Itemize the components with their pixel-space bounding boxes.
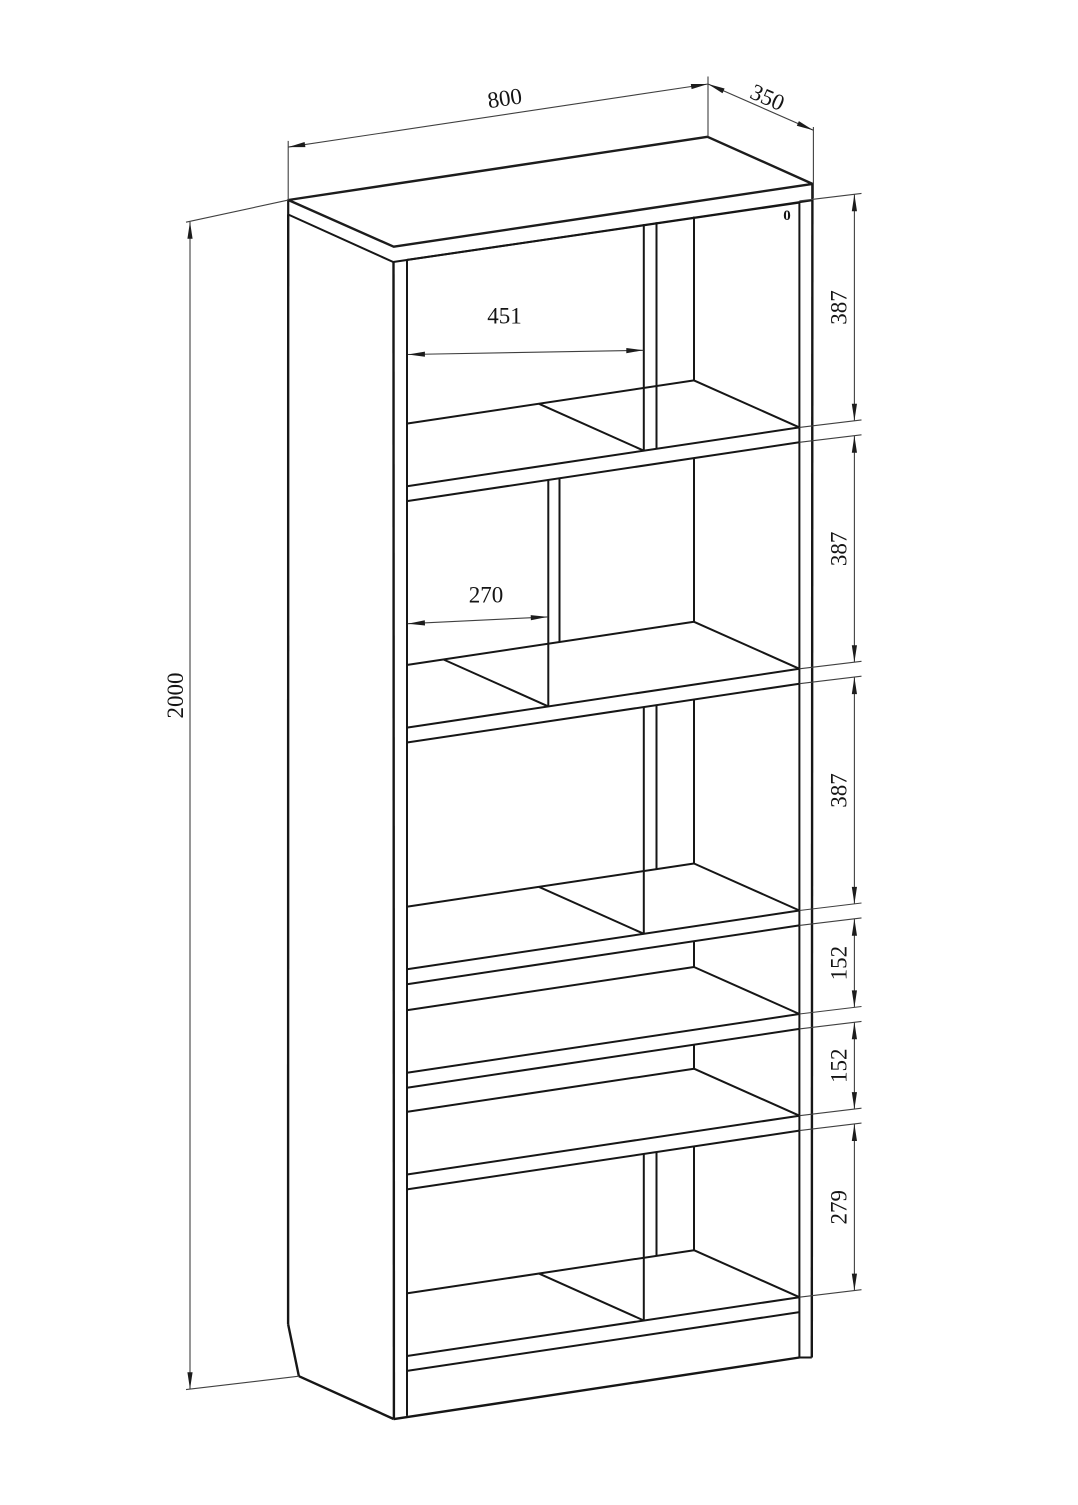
svg-text:350: 350 [747, 79, 789, 116]
svg-text:451: 451 [487, 303, 522, 328]
svg-text:387: 387 [826, 532, 851, 567]
svg-text:152: 152 [826, 946, 851, 981]
svg-text:2000: 2000 [163, 673, 188, 719]
svg-text:152: 152 [826, 1048, 851, 1083]
svg-text:270: 270 [469, 583, 504, 608]
svg-text:279: 279 [826, 1190, 851, 1225]
svg-text:800: 800 [486, 83, 524, 113]
svg-text:387: 387 [826, 773, 851, 808]
svg-text:0: 0 [783, 208, 791, 224]
svg-text:387: 387 [826, 290, 851, 325]
